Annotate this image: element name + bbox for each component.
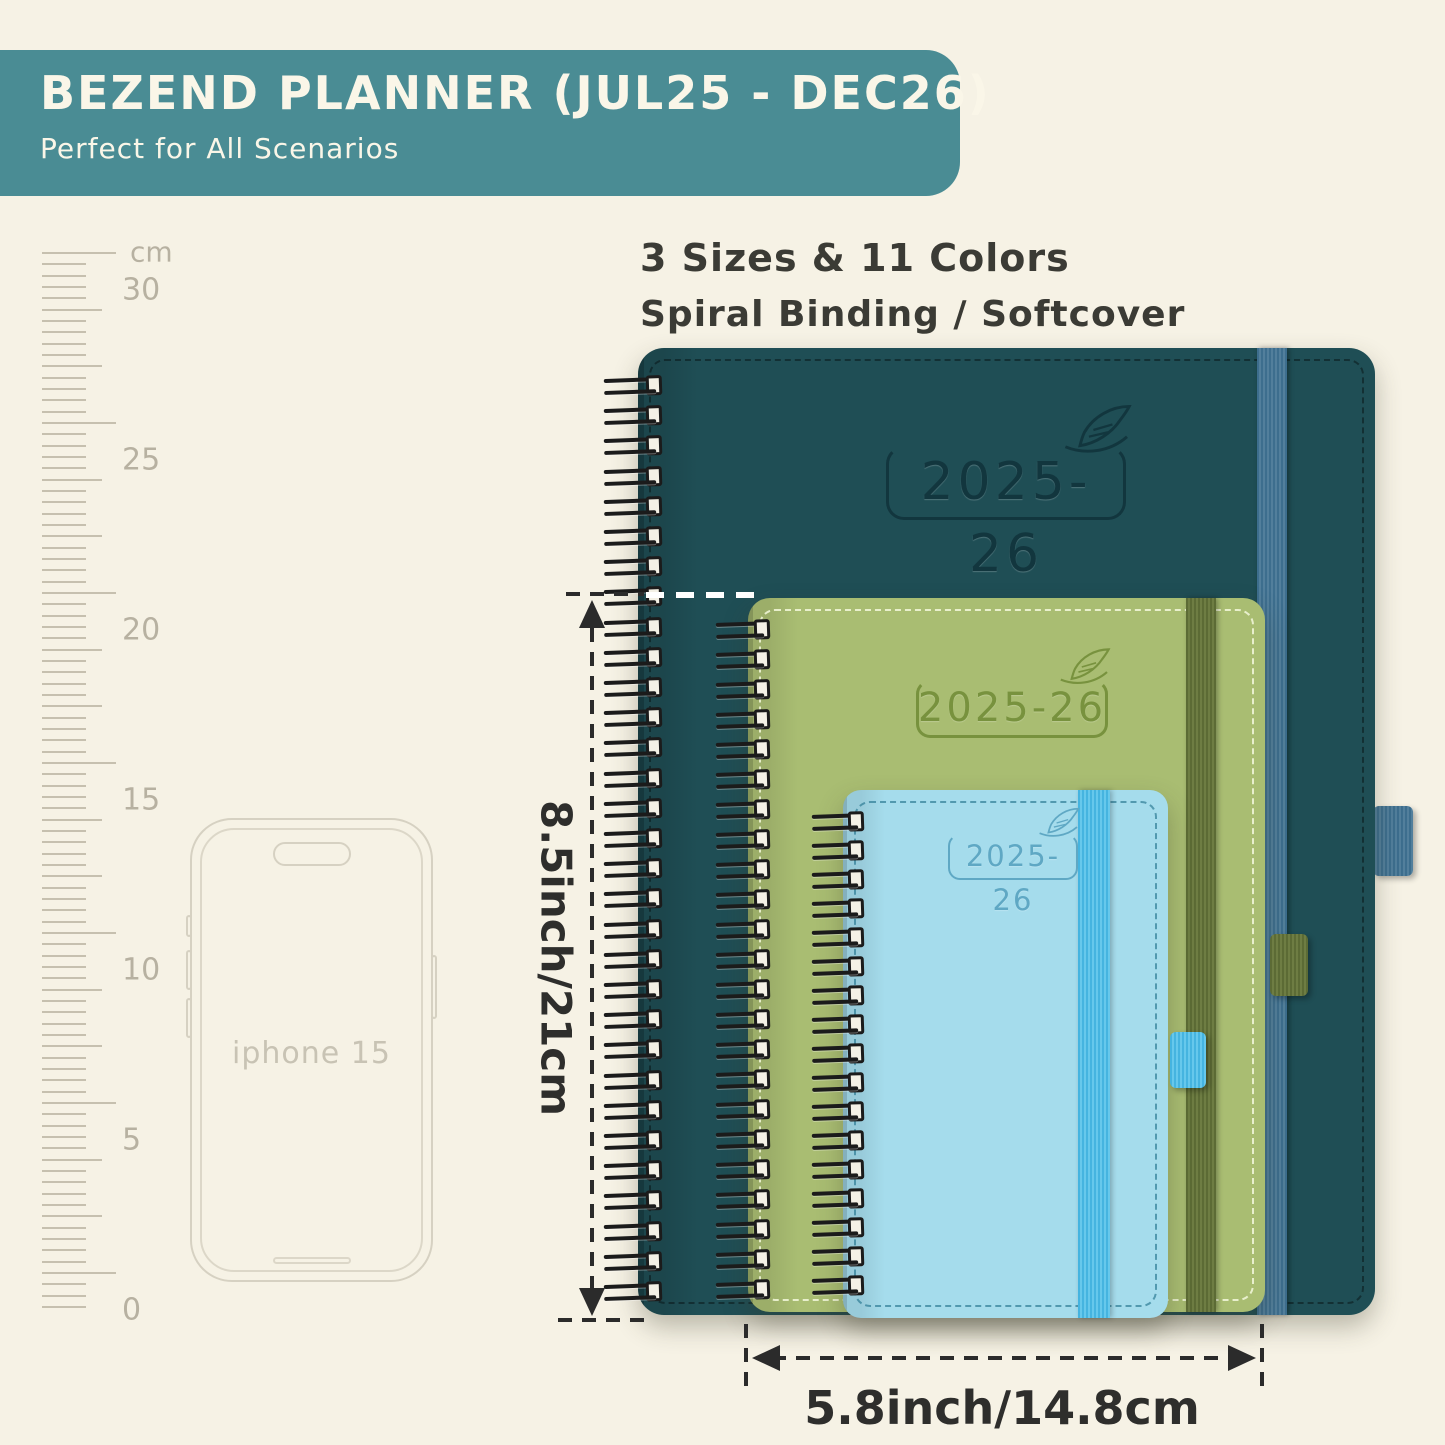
- ruler-tick: [42, 773, 86, 775]
- page-title: BEZEND PLANNER (JUL25 - DEC26): [40, 66, 920, 120]
- spiral-coil: [604, 407, 663, 425]
- coil-paper-tab: [754, 1249, 771, 1270]
- arrow-left-icon: [752, 1345, 780, 1371]
- feather-icon: [1054, 646, 1118, 688]
- ruler-tick: [42, 467, 86, 469]
- spiral-coil: [604, 1102, 663, 1120]
- spiral-coil: [604, 679, 663, 697]
- spiral-coil: [716, 921, 771, 939]
- coil-paper-tab: [754, 709, 771, 730]
- spiral-coil: [812, 1248, 865, 1266]
- ruler-tick: [42, 411, 86, 413]
- coil-paper-tab: [848, 1246, 865, 1267]
- coil-paper-tab: [646, 1160, 663, 1181]
- coil-paper-tab: [754, 1009, 771, 1030]
- spiral-coil: [716, 1131, 771, 1149]
- height-dimension-line: [590, 604, 594, 1294]
- coil-paper-tab: [848, 1159, 865, 1180]
- planner-medium-emboss: 2025-26: [916, 680, 1108, 738]
- ruler-tick: [42, 1193, 86, 1195]
- ruler-tick: [42, 1023, 86, 1025]
- ruler-tick: [42, 343, 86, 345]
- ruler-tick: [42, 331, 86, 333]
- ruler-tick: [42, 660, 86, 662]
- planner-medium-elastic-band: [1186, 598, 1216, 1312]
- bottom-port-icon: [273, 1257, 351, 1264]
- ruler-tick: [42, 1227, 86, 1229]
- coil-paper-tab: [848, 1217, 865, 1238]
- headline-line1: 3 Sizes & 11 Colors: [640, 236, 1185, 280]
- spiral-coil: [716, 681, 771, 699]
- spiral-coil: [604, 1132, 663, 1150]
- ruler-tick: [42, 1306, 86, 1308]
- spiral-coil: [604, 860, 663, 878]
- spiral-coil: [604, 951, 663, 969]
- spiral-coil: [716, 861, 771, 879]
- ruler-tick: [42, 399, 86, 401]
- ruler-tick: [42, 615, 86, 617]
- spiral-coil: [812, 1016, 865, 1034]
- page-subtitle: Perfect for All Scenarios: [40, 132, 920, 165]
- coil-paper-tab: [646, 617, 663, 638]
- volume-down-button-icon: [186, 998, 192, 1038]
- spiral-coil: [812, 1161, 865, 1179]
- spiral-coil: [604, 377, 663, 395]
- iphone-label: iphone 15: [192, 1036, 431, 1071]
- ruler-tick: [42, 1057, 86, 1059]
- coil-paper-tab: [848, 1101, 865, 1122]
- ruler-tick: [42, 705, 102, 707]
- spiral-coil: [716, 651, 771, 669]
- ruler-tick: [42, 1238, 86, 1240]
- ruler-tick: [42, 1136, 86, 1138]
- coil-paper-tab: [754, 649, 771, 670]
- ruler-tick: [42, 1125, 86, 1127]
- planner-large-pen-loop: [1373, 806, 1413, 876]
- spiral-coil: [716, 1041, 771, 1059]
- width-dimension-line: [772, 1356, 1236, 1360]
- ruler-tick: [42, 490, 86, 492]
- ruler-tick: [42, 320, 86, 322]
- ruler-tick: [42, 558, 86, 560]
- ruler-mark-0: 0: [122, 1293, 141, 1328]
- spiral-coil: [716, 1011, 771, 1029]
- spiral-coil: [716, 1191, 771, 1209]
- planner-large-year: 2025-26: [886, 446, 1126, 590]
- coil-paper-tab: [754, 889, 771, 910]
- spiral-coil: [812, 842, 865, 860]
- planner-medium-year: 2025-26: [916, 680, 1108, 736]
- spiral-coil: [604, 558, 663, 576]
- ruler-tick: [42, 263, 86, 265]
- planner-small-year: 2025-26: [948, 834, 1078, 922]
- coil-paper-tab: [848, 927, 865, 948]
- ruler-tick: [42, 252, 116, 254]
- spiral-coil: [716, 711, 771, 729]
- ruler-tick: [42, 807, 86, 809]
- spiral-coil: [716, 621, 771, 639]
- feature-headline: 3 Sizes & 11 Colors Spiral Binding / Sof…: [640, 236, 1185, 335]
- coil-paper-tab: [754, 679, 771, 700]
- spiral-coil: [812, 987, 865, 1005]
- ruler-tick: [42, 751, 86, 753]
- ruler-tick: [42, 841, 86, 843]
- coil-paper-tab: [646, 1070, 663, 1091]
- coil-paper-tab: [848, 1072, 865, 1093]
- coil-paper-tab: [646, 1130, 663, 1151]
- feather-icon: [1056, 402, 1142, 458]
- ruler-tick: [42, 1045, 102, 1047]
- spiral-coil: [716, 891, 771, 909]
- spiral-coil: [812, 1219, 865, 1237]
- power-button-icon: [431, 955, 437, 1019]
- spiral-coil: [604, 709, 663, 727]
- feather-icon: [1034, 806, 1086, 840]
- coil-paper-tab: [646, 1039, 663, 1060]
- coil-paper-tab: [646, 1190, 663, 1211]
- coil-paper-tab: [646, 526, 663, 547]
- ruler-tick: [42, 1204, 86, 1206]
- spiral-coil: [604, 1162, 663, 1180]
- height-dimension-tick-white: [646, 592, 762, 598]
- spiral-coil: [716, 1251, 771, 1269]
- ruler-tick: [42, 365, 102, 367]
- ruler-tick: [42, 819, 102, 821]
- spiral-coil: [604, 890, 663, 908]
- coil-paper-tab: [646, 798, 663, 819]
- ruler-tick: [42, 1215, 102, 1217]
- spiral-coil: [604, 649, 663, 667]
- ruler-tick: [42, 796, 86, 798]
- ruler-tick: [42, 887, 86, 889]
- coil-paper-tab: [848, 811, 865, 832]
- ruler-mark-10: 10: [122, 953, 160, 988]
- coil-paper-tab: [754, 1069, 771, 1090]
- coil-paper-tab: [646, 375, 663, 396]
- ruler-tick: [42, 671, 86, 673]
- coil-paper-tab: [646, 707, 663, 728]
- ruler-tick: [42, 1147, 86, 1149]
- coil-paper-tab: [848, 1130, 865, 1151]
- arrow-up-icon: [579, 600, 605, 628]
- ruler-tick: [42, 1249, 86, 1251]
- coil-paper-tab: [754, 1099, 771, 1120]
- ruler-tick: [42, 909, 86, 911]
- ruler-tick: [42, 728, 86, 730]
- ruler-tick: [42, 921, 86, 923]
- ruler-tick: [42, 1091, 86, 1093]
- spiral-coil: [716, 981, 771, 999]
- ruler-tick: [42, 977, 86, 979]
- spiral-coil: [604, 619, 663, 637]
- coil-paper-tab: [848, 956, 865, 977]
- spiral-coil: [604, 981, 663, 999]
- ruler-tick: [42, 1261, 86, 1263]
- ruler-tick: [42, 603, 86, 605]
- ruler-tick: [42, 1170, 86, 1172]
- ruler-tick: [42, 569, 86, 571]
- ruler-tick: [42, 943, 86, 945]
- planner-small-emboss: 2025-26: [948, 834, 1078, 880]
- coil-paper-tab: [848, 1188, 865, 1209]
- ruler-tick: [42, 649, 102, 651]
- coil-paper-tab: [646, 677, 663, 698]
- spiral-coil: [812, 958, 865, 976]
- ruler-tick: [42, 501, 86, 503]
- spiral-coil: [604, 468, 663, 486]
- spiral-coil: [716, 1281, 771, 1299]
- spiral-coil: [604, 437, 663, 455]
- coil-paper-tab: [848, 1043, 865, 1064]
- arrow-right-icon: [1228, 1345, 1256, 1371]
- spiral-coil: [812, 813, 865, 831]
- ruler-tick: [42, 547, 86, 549]
- ruler-mark-15: 15: [122, 783, 160, 818]
- coil-paper-tab: [646, 737, 663, 758]
- coil-paper-tab: [754, 919, 771, 940]
- dynamic-island-icon: [273, 842, 351, 866]
- ruler-tick: [42, 1113, 86, 1115]
- coil-paper-tab: [646, 1251, 663, 1272]
- ruler-tick: [42, 762, 116, 764]
- coil-paper-tab: [754, 1189, 771, 1210]
- coil-paper-tab: [754, 1039, 771, 1060]
- coil-paper-tab: [646, 919, 663, 940]
- ruler-tick: [42, 989, 102, 991]
- ruler-tick: [42, 864, 86, 866]
- ruler-tick: [42, 524, 86, 526]
- ruler-tick: [42, 297, 86, 299]
- coil-paper-tab: [646, 888, 663, 909]
- coil-paper-tab: [754, 799, 771, 820]
- coil-paper-tab: [754, 1219, 771, 1240]
- spiral-coil: [812, 1132, 865, 1150]
- ruler-tick: [42, 1000, 86, 1002]
- ruler-tick: [42, 535, 102, 537]
- spiral-coil: [604, 1072, 663, 1090]
- ruler-tick: [42, 875, 102, 877]
- ruler-tick: [42, 433, 86, 435]
- coil-paper-tab: [754, 739, 771, 760]
- coil-paper-tab: [848, 985, 865, 1006]
- spiral-coil: [604, 1041, 663, 1059]
- headline-line2: Spiral Binding / Softcover: [640, 294, 1185, 335]
- ruler-tick: [42, 592, 116, 594]
- spiral-coil: [812, 1190, 865, 1208]
- ruler-tick: [42, 637, 86, 639]
- spiral-coil: [812, 1103, 865, 1121]
- coil-paper-tab: [754, 1129, 771, 1150]
- coil-paper-tab: [646, 496, 663, 517]
- width-dimension-label: 5.8inch/14.8cm: [804, 1381, 1200, 1435]
- ruler-tick: [42, 1159, 102, 1161]
- ruler-tick: [42, 830, 86, 832]
- coil-paper-tab: [646, 1221, 663, 1242]
- ruler-tick: [42, 1102, 116, 1104]
- spiral-coil: [812, 871, 865, 889]
- spiral-coil: [604, 1011, 663, 1029]
- spiral-coil: [716, 831, 771, 849]
- coil-paper-tab: [754, 619, 771, 640]
- ruler-tick: [42, 739, 86, 741]
- ruler-tick: [42, 1283, 86, 1285]
- ruler-tick: [42, 626, 86, 628]
- ruler-tick: [42, 286, 86, 288]
- planner-small-elastic-band: [1078, 790, 1110, 1318]
- ruler-tick: [42, 1034, 86, 1036]
- ruler-tick: [42, 1068, 86, 1070]
- spiral-coil: [716, 801, 771, 819]
- ruler-tick: [42, 785, 86, 787]
- coil-paper-tab: [754, 979, 771, 1000]
- coil-paper-tab: [646, 435, 663, 456]
- spiral-coil: [716, 1071, 771, 1089]
- ruler-mark-5: 5: [122, 1123, 141, 1158]
- ruler-tick: [42, 581, 86, 583]
- coil-paper-tab: [646, 979, 663, 1000]
- spiral-coil: [604, 1192, 663, 1210]
- ruler-tick: [42, 513, 86, 515]
- spiral-coil: [812, 929, 865, 947]
- arrow-down-icon: [579, 1288, 605, 1316]
- coil-paper-tab: [646, 949, 663, 970]
- coil-paper-tab: [848, 1014, 865, 1035]
- ruler-tick: [42, 1295, 86, 1297]
- coil-paper-tab: [754, 769, 771, 790]
- ruler-tick: [42, 1011, 86, 1013]
- coil-paper-tab: [646, 647, 663, 668]
- ruler-tick: [42, 309, 102, 311]
- product-infographic: BEZEND PLANNER (JUL25 - DEC26) Perfect f…: [0, 0, 1445, 1445]
- spiral-coil: [716, 951, 771, 969]
- spiral-coil: [604, 498, 663, 516]
- spiral-coil: [604, 921, 663, 939]
- coil-paper-tab: [754, 1159, 771, 1180]
- spiral-coil: [604, 770, 663, 788]
- ruler-tick: [42, 1079, 86, 1081]
- spiral-coil: [604, 739, 663, 757]
- coil-paper-tab: [848, 898, 865, 919]
- ruler-mark-30: 30: [122, 273, 160, 308]
- ruler-tick: [42, 955, 86, 957]
- iphone-outline: iphone 15: [190, 818, 433, 1282]
- ruler-mark-25: 25: [122, 443, 160, 478]
- planner-large-emboss: 2025-26: [886, 446, 1126, 520]
- coil-paper-tab: [646, 1100, 663, 1121]
- coil-paper-tab: [754, 1279, 771, 1300]
- ruler-tick: [42, 275, 86, 277]
- ruler-tick: [42, 377, 86, 379]
- spiral-coil: [812, 1277, 865, 1295]
- ruler-tick: [42, 388, 86, 390]
- width-dimension-left-tick: [744, 1324, 748, 1394]
- height-dimension-bottom-tick: [558, 1318, 646, 1322]
- spiral-coil: [812, 1074, 865, 1092]
- ruler-mark-20: 20: [122, 613, 160, 648]
- spiral-coil: [812, 1045, 865, 1063]
- coil-paper-tab: [646, 1281, 663, 1302]
- coil-paper-tab: [646, 466, 663, 487]
- spiral-coil: [716, 771, 771, 789]
- coil-paper-tab: [646, 768, 663, 789]
- coil-paper-tab: [848, 1275, 865, 1296]
- coil-paper-tab: [754, 949, 771, 970]
- spiral-coil: [716, 741, 771, 759]
- coil-paper-tab: [646, 405, 663, 426]
- spiral-coil: [604, 1253, 663, 1271]
- ruler-tick: [42, 683, 86, 685]
- ruler-tick: [42, 932, 116, 934]
- ruler-tick: [42, 853, 86, 855]
- ruler-tick: [42, 694, 86, 696]
- coil-paper-tab: [646, 556, 663, 577]
- ruler-tick: [42, 479, 102, 481]
- spiral-coil: [604, 830, 663, 848]
- coil-paper-tab: [646, 828, 663, 849]
- volume-up-button-icon: [186, 950, 192, 990]
- spiral-coil: [604, 800, 663, 818]
- spiral-coil: [604, 528, 663, 546]
- mute-button-icon: [186, 915, 192, 937]
- spiral-coil: [604, 1283, 663, 1301]
- ruler-tick: [42, 966, 86, 968]
- ruler-tick: [42, 1272, 116, 1274]
- coil-paper-tab: [754, 829, 771, 850]
- planner-medium-pen-loop: [1270, 934, 1308, 996]
- spiral-coil: [812, 900, 865, 918]
- ruler-tick: [42, 1181, 86, 1183]
- ruler-tick: [42, 717, 86, 719]
- coil-paper-tab: [848, 840, 865, 861]
- ruler-tick: [42, 445, 86, 447]
- planner-small-pen-loop: [1170, 1032, 1206, 1088]
- ruler-unit-label: cm: [130, 236, 173, 269]
- coil-paper-tab: [754, 859, 771, 880]
- spiral-coil: [604, 1223, 663, 1241]
- spiral-coil: [716, 1101, 771, 1119]
- coil-paper-tab: [646, 858, 663, 879]
- ruler-tick: [42, 456, 86, 458]
- spiral-coil: [716, 1161, 771, 1179]
- spiral-coil: [716, 1221, 771, 1239]
- coil-paper-tab: [646, 1009, 663, 1030]
- ruler-tick: [42, 898, 86, 900]
- ruler-tick: [42, 354, 86, 356]
- title-banner: BEZEND PLANNER (JUL25 - DEC26) Perfect f…: [0, 50, 960, 196]
- coil-paper-tab: [848, 869, 865, 890]
- width-dimension-right-tick: [1260, 1324, 1264, 1394]
- height-dimension-label: 8.5inch/21cm: [532, 800, 581, 1116]
- height-dimension-top-tick: [566, 592, 644, 596]
- ruler-tick: [42, 422, 116, 424]
